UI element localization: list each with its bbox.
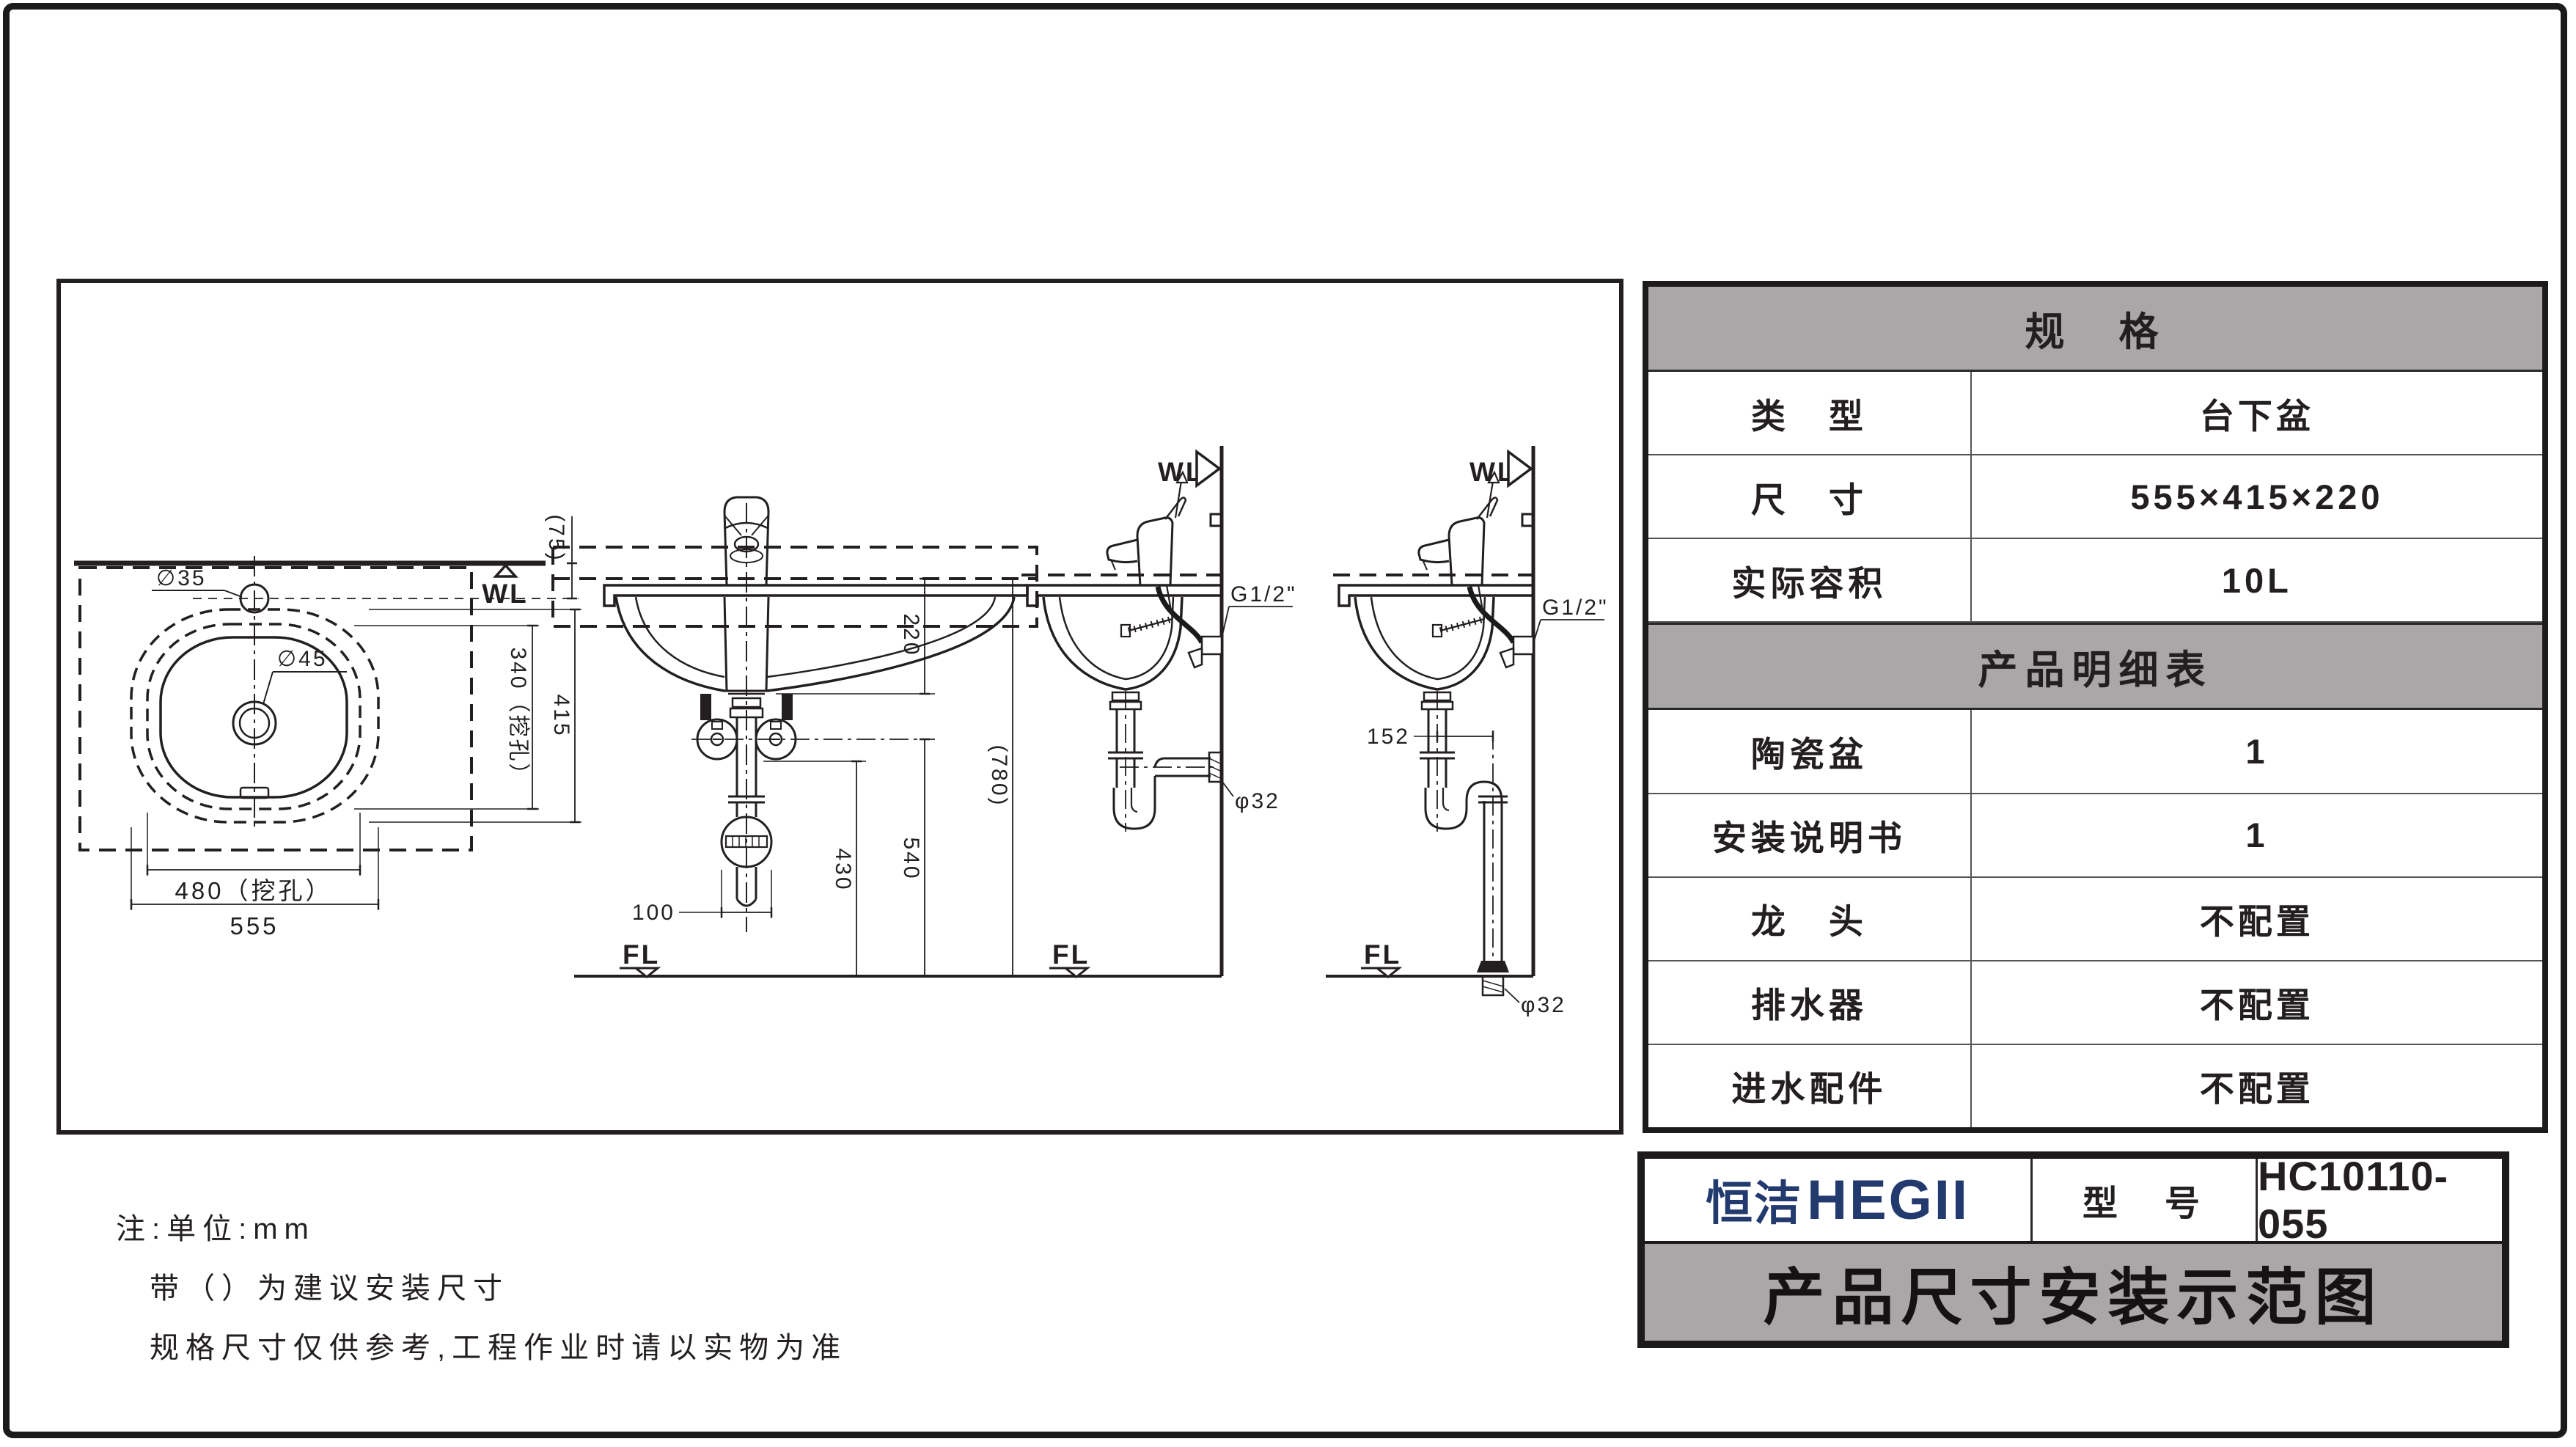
plan-dia45-label: ∅45	[277, 647, 328, 671]
front-counter-slab	[604, 585, 1027, 606]
side-view-wall-drain: WL	[1014, 446, 1297, 977]
spec-row-capacity-label: 实际容积	[1648, 539, 1972, 621]
spec-row-capacity-value: 10L	[1972, 539, 2542, 621]
table-row: 排水器 不配置	[1648, 961, 2542, 1045]
table-row: 安装说明书 1	[1648, 794, 2542, 878]
detail-row-drainer-value: 不配置	[1972, 961, 2542, 1044]
model-number-value: HC10110-055	[2258, 1159, 2502, 1241]
note-line-1: 注:单位:mm	[116, 1200, 847, 1259]
plan-dim340-label: 340（挖孔）	[506, 647, 530, 787]
table-row: 尺 寸 555×415×220	[1648, 455, 2542, 539]
table-row: 陶瓷盆 1	[1648, 710, 2542, 794]
table-row: 实际容积 10L	[1648, 539, 2542, 623]
table-row: 龙 头 不配置	[1648, 878, 2542, 961]
sw-g12-label: G1/2"	[1230, 582, 1297, 607]
plan-dim75-label: (75)	[544, 514, 568, 562]
sf-angle-valve	[1513, 637, 1533, 654]
sw-fl-label: FL	[1052, 939, 1090, 970]
detail-row-manual-value: 1	[1972, 794, 2542, 876]
side-view-floor-drain: WL	[1326, 446, 1609, 1017]
front-dim220-label: 220	[899, 613, 923, 656]
installation-drawing: WL ∅35 ∅45	[61, 283, 1619, 1130]
front-view: 100 220 540 (780) 430 FL	[553, 497, 1037, 977]
sw-dia32-label: φ32	[1235, 789, 1280, 813]
plan-dim480-label: 480（挖孔）	[175, 877, 332, 904]
brand-logo-cn: 恒洁	[1706, 1166, 1802, 1234]
sw-wl-triangle-icon	[1197, 452, 1219, 486]
note-line-2: 带（）为建议安装尺寸	[116, 1259, 847, 1319]
sw-counter-slab	[1027, 585, 1222, 606]
detail-row-inlet-value: 不配置	[1972, 1045, 2542, 1127]
sf-dim152-label: 152	[1367, 725, 1410, 749]
detail-row-basin-value: 1	[1972, 710, 2542, 792]
plan-wl-label: WL	[482, 579, 529, 609]
detail-row-faucet-value: 不配置	[1972, 878, 2542, 960]
title-block: 恒洁 HEGII 型 号 HC10110-055 产品尺寸安装示范图	[1637, 1151, 2509, 1348]
sf-floor-flange	[1477, 961, 1509, 972]
table-row: 类 型 台下盆	[1648, 372, 2542, 455]
table-row: 进水配件 不配置	[1648, 1045, 2542, 1127]
sf-g12-label: G1/2"	[1542, 596, 1609, 620]
plan-dim415-label: 415	[549, 694, 573, 737]
plan-wl-triangle-icon	[496, 565, 515, 576]
detail-row-faucet-label: 龙 头	[1648, 878, 1972, 960]
notes: 注:单位:mm 带（）为建议安装尺寸 规格尺寸仅供参考,工程作业时请以实物为准	[116, 1200, 847, 1378]
note-line-3: 规格尺寸仅供参考,工程作业时请以实物为准	[116, 1319, 847, 1378]
front-dim430-label: 430	[831, 848, 855, 891]
detail-row-basin-label: 陶瓷盆	[1648, 710, 1972, 792]
plan-view: WL ∅35 ∅45	[74, 514, 581, 939]
spec-table-header: 规 格	[1648, 287, 2542, 372]
spec-table: 规 格 类 型 台下盆 尺 寸 555×415×220 实际容积 10L 产品明…	[1643, 281, 2548, 1133]
detail-row-drainer-label: 排水器	[1648, 961, 1972, 1044]
front-fl-label: FL	[623, 939, 660, 970]
plan-dia35-label: ∅35	[156, 566, 207, 590]
spec-row-type-value: 台下盆	[1972, 372, 2542, 454]
sw-faucet	[1107, 472, 1187, 585]
spec-row-size-value: 555×415×220	[1972, 455, 2542, 538]
detail-row-inlet-label: 进水配件	[1648, 1045, 1972, 1127]
drawing-title: 产品尺寸安装示范图	[1645, 1244, 2502, 1341]
front-dim100-label: 100	[632, 901, 675, 925]
detail-row-manual-label: 安装说明书	[1648, 794, 1972, 876]
front-dim540-label: 540	[899, 837, 923, 880]
sf-faucet	[1419, 472, 1499, 585]
model-number-label: 型 号	[2033, 1159, 2258, 1241]
front-dim780-label: (780)	[987, 744, 1011, 807]
spec-row-type-label: 类 型	[1648, 372, 1972, 454]
detail-table-header: 产品明细表	[1648, 623, 2542, 710]
sf-dia32-label: φ32	[1521, 993, 1566, 1017]
brand-logo-en: HEGII	[1807, 1168, 1970, 1232]
sf-wl-triangle-icon	[1508, 452, 1531, 486]
brand-logo: 恒洁 HEGII	[1645, 1159, 2033, 1241]
drawing-frame: WL ∅35 ∅45	[56, 279, 1623, 1135]
sw-angle-valve	[1202, 637, 1222, 654]
spec-row-size-label: 尺 寸	[1648, 455, 1972, 538]
plan-dim555-label: 555	[230, 912, 279, 939]
sf-fl-label: FL	[1364, 939, 1401, 970]
sf-counter-slab	[1339, 585, 1533, 606]
front-counter-box	[553, 547, 1037, 626]
